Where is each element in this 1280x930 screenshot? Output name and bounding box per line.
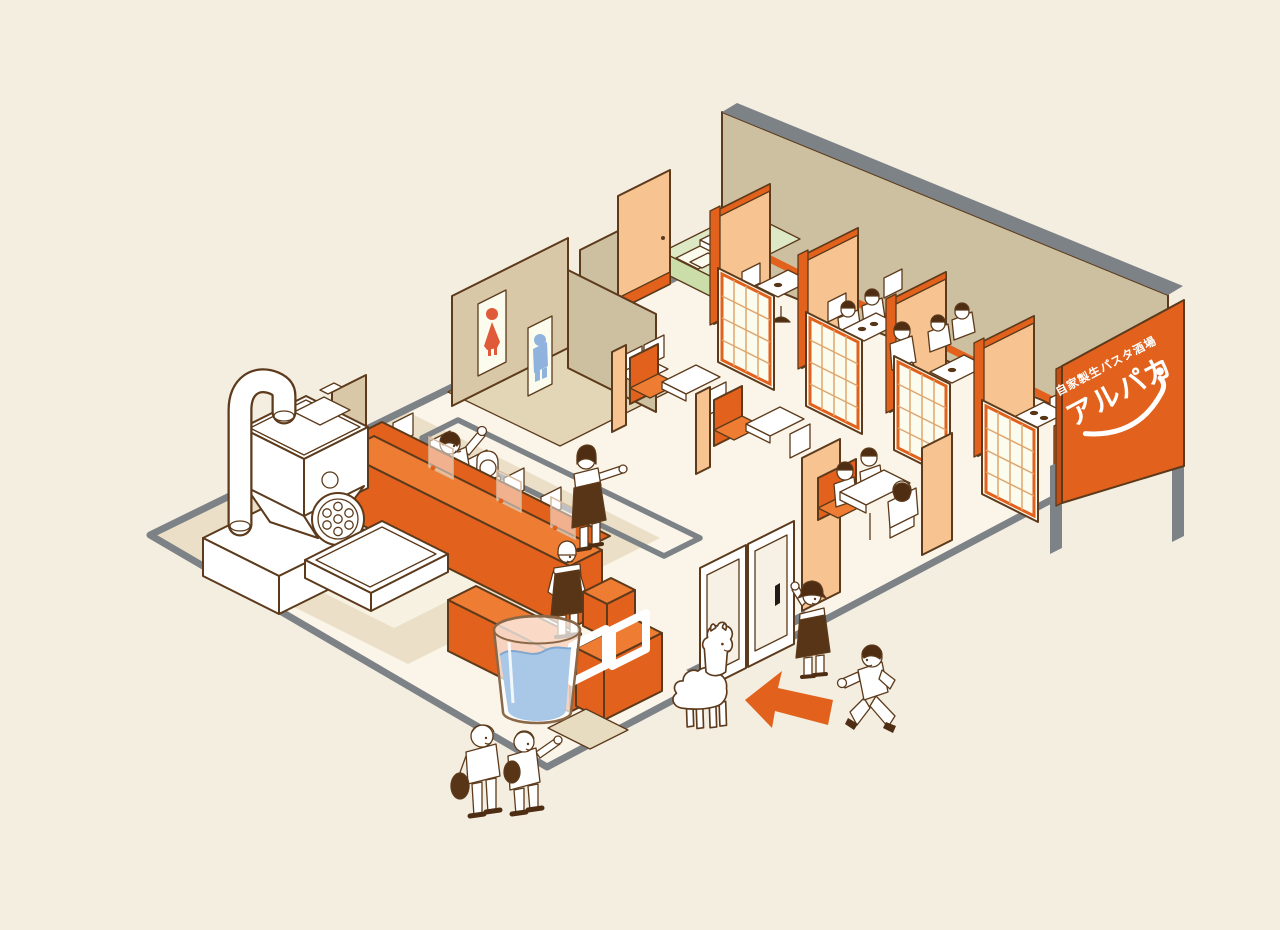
walking-guest — [451, 725, 500, 817]
entrance-arrow-icon — [745, 671, 833, 728]
restaurant-isometric-illustration: 自家製生パスタ酒場 アルパカ — [0, 0, 1280, 930]
door-handle — [775, 583, 780, 606]
sliding-door — [618, 170, 670, 310]
shoulder-bag — [504, 761, 520, 783]
running-guest — [838, 645, 897, 733]
scene-canvas: 自家製生パスタ酒場 アルパカ — [0, 0, 1280, 930]
restroom-male-sign — [528, 316, 552, 396]
water-glass — [494, 616, 580, 723]
restroom-female-sign — [478, 290, 506, 376]
shoulder-bag — [451, 773, 469, 799]
